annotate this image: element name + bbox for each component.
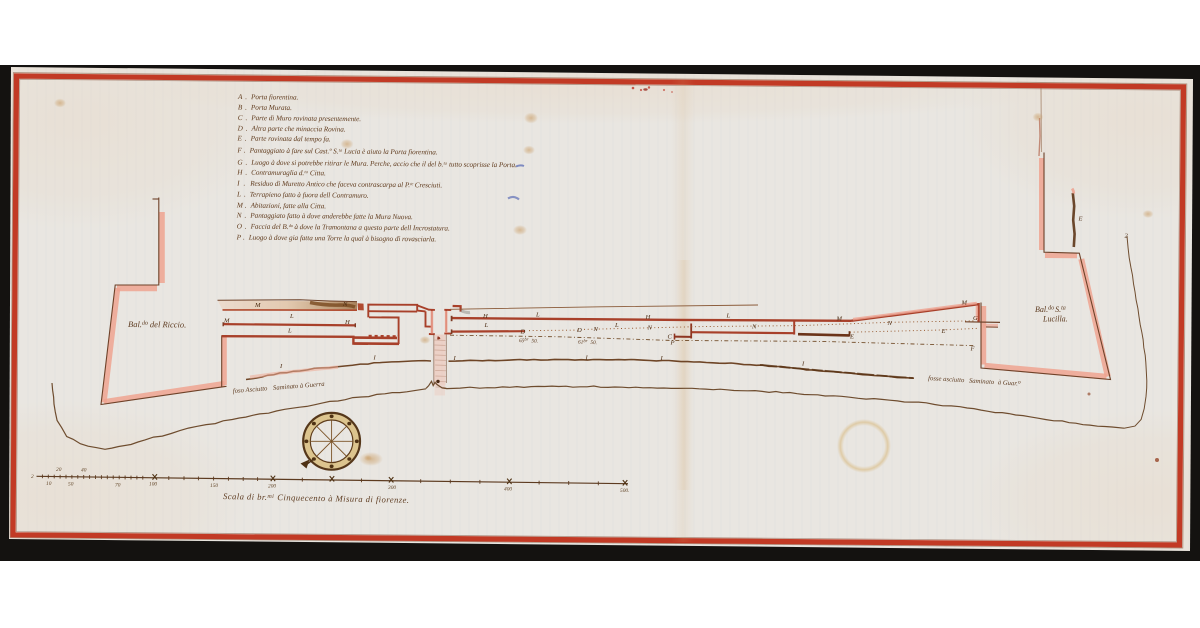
- svg-text:Lucilla.: Lucilla.: [1042, 315, 1068, 324]
- svg-text:400: 400: [504, 487, 512, 493]
- svg-text:N: N: [887, 320, 893, 327]
- svg-text:M: M: [223, 318, 230, 325]
- svg-text:P: P: [670, 340, 675, 347]
- svg-text:N.Pantaggiato fatto à dove and: N.Pantaggiato fatto à dove anderebbe fat…: [236, 211, 413, 221]
- svg-text:500.: 500.: [620, 488, 629, 494]
- svg-text:L: L: [484, 322, 489, 329]
- svg-text:L: L: [289, 313, 294, 320]
- svg-text:20: 20: [56, 467, 62, 473]
- svg-text:A.Porta fiorentina.: A.Porta fiorentina.: [237, 93, 299, 102]
- svg-text:E.Parte rovinata dal tempo fa.: E.Parte rovinata dal tempo fa.: [237, 134, 331, 143]
- svg-text:E: E: [941, 328, 946, 335]
- svg-text:L: L: [287, 328, 292, 335]
- svg-text:2: 2: [31, 474, 34, 480]
- svg-text:L: L: [614, 322, 619, 329]
- svg-text:D: D: [576, 327, 582, 334]
- svg-text:C.Parte di Muro rovinata prese: C.Parte di Muro rovinata presentemente.: [238, 114, 362, 123]
- svg-text:D: D: [520, 329, 526, 336]
- svg-text:50: 50: [68, 482, 74, 488]
- svg-text:Bal.dodel Riccio.: Bal.dodel Riccio.: [128, 319, 186, 330]
- svg-text:N: N: [751, 324, 757, 331]
- svg-text:N: N: [342, 301, 348, 308]
- svg-text:70: 70: [115, 483, 121, 489]
- svg-text:L: L: [535, 312, 540, 319]
- svg-text:M: M: [836, 316, 843, 323]
- svg-text:40: 40: [81, 468, 87, 474]
- svg-text:150: 150: [210, 483, 218, 489]
- svg-text:M: M: [961, 300, 968, 307]
- svg-text:B.Porta Murata.: B.Porta Murata.: [238, 103, 292, 112]
- svg-text:300: 300: [387, 485, 396, 491]
- svg-text:E: E: [849, 334, 854, 341]
- svg-text:G: G: [973, 315, 978, 322]
- svg-text:L.Terrapieno fatto à fuora del: L.Terrapieno fatto à fuora dell Contramu…: [236, 190, 369, 199]
- svg-text:E: E: [1078, 216, 1083, 223]
- svg-text:100: 100: [149, 482, 157, 488]
- svg-text:10: 10: [46, 481, 52, 487]
- svg-text:N: N: [593, 326, 599, 333]
- svg-text:M: M: [254, 302, 261, 309]
- svg-text:L: L: [726, 313, 731, 320]
- svg-text:D.Altra parte che minaccia Rov: D.Altra parte che minaccia Rovina.: [237, 124, 346, 133]
- svg-text:200: 200: [268, 484, 276, 490]
- svg-text:N: N: [647, 325, 653, 332]
